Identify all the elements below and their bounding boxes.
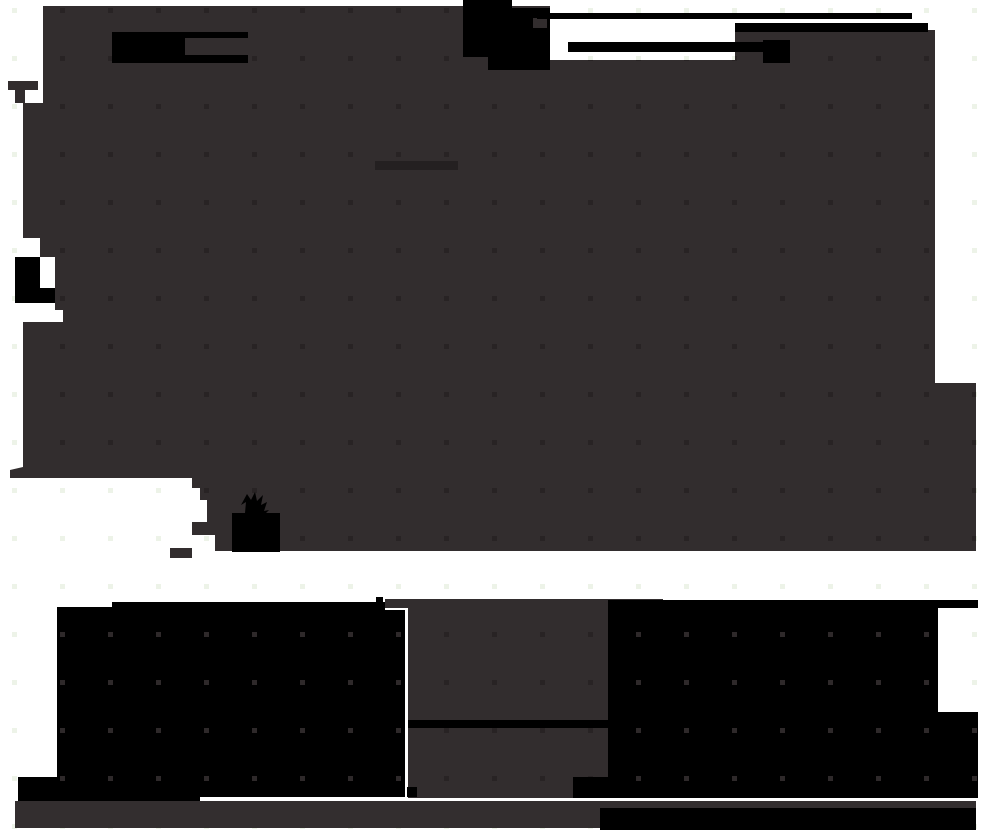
ink-line-lower bbox=[568, 42, 790, 52]
interior-dark-mark bbox=[375, 161, 458, 170]
ink-line-upper bbox=[735, 23, 928, 32]
ink-squiggle bbox=[407, 787, 417, 797]
ink-nub bbox=[763, 40, 790, 63]
ink-line-top bbox=[537, 13, 912, 19]
shape-layers bbox=[0, 0, 982, 836]
canvas-viewport bbox=[0, 0, 982, 836]
funnel-corner-notch bbox=[573, 777, 608, 798]
bottom-band-black bbox=[600, 808, 976, 830]
blob-edge-tongue bbox=[170, 548, 192, 558]
funnel-gap-line bbox=[408, 720, 608, 728]
ink-blob-hole bbox=[533, 18, 547, 28]
silhouette-scene bbox=[0, 0, 982, 836]
redaction-flag-inset bbox=[185, 38, 248, 55]
